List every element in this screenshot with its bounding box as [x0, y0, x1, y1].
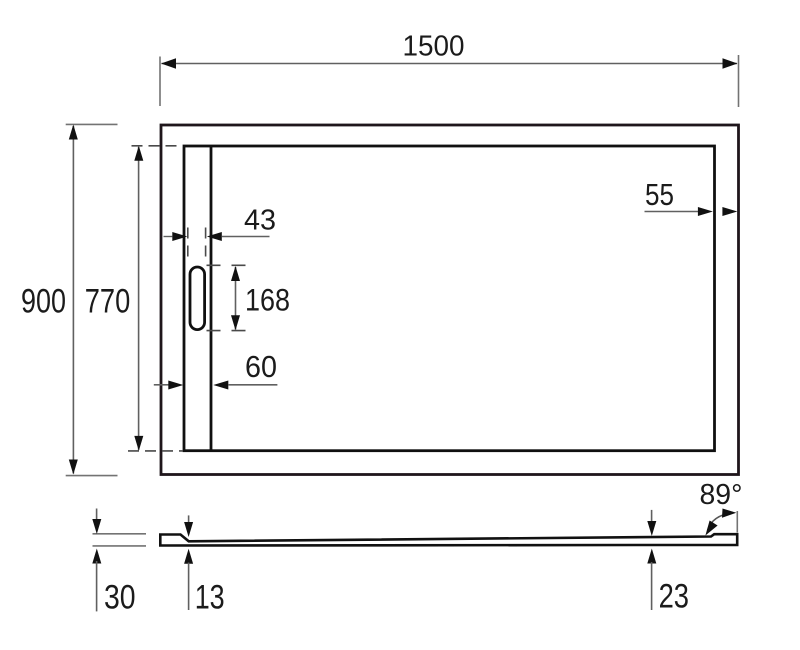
svg-text:13: 13 — [195, 579, 225, 617]
svg-text:43: 43 — [244, 204, 276, 236]
svg-text:770: 770 — [85, 283, 131, 321]
svg-text:168: 168 — [245, 282, 290, 318]
svg-text:23: 23 — [659, 578, 689, 616]
svg-text:30: 30 — [104, 579, 136, 617]
svg-text:1500: 1500 — [403, 30, 465, 62]
svg-text:55: 55 — [645, 177, 674, 212]
svg-text:60: 60 — [245, 349, 277, 384]
svg-text:89°: 89° — [700, 479, 743, 511]
svg-text:900: 900 — [21, 283, 66, 321]
